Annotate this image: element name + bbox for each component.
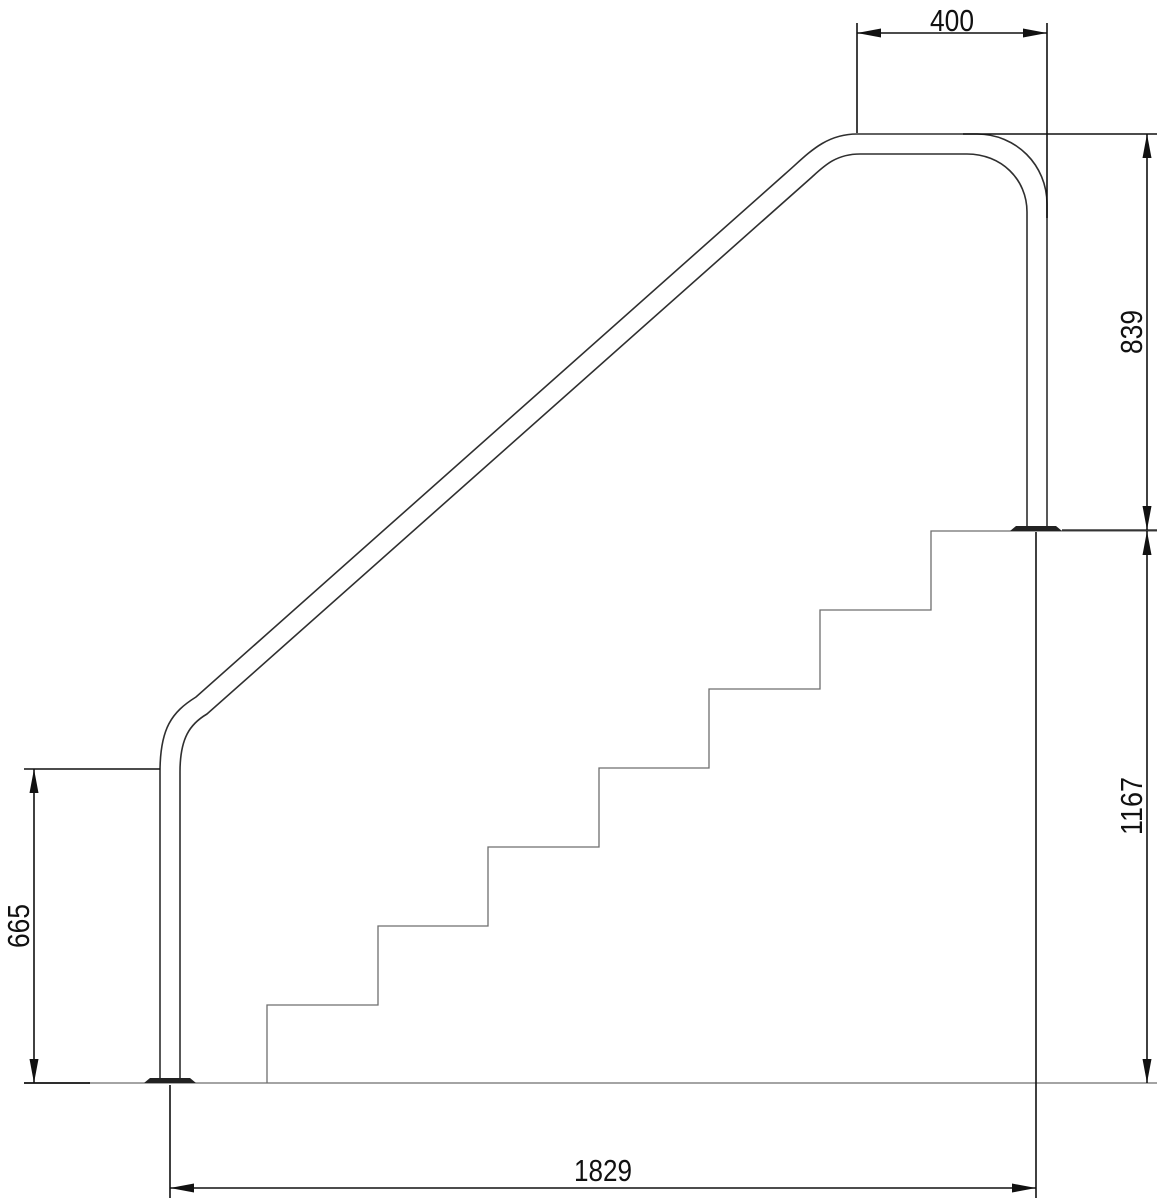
drawing-canvas: 400 839 1167 665 — [0, 0, 1157, 1200]
arrowhead — [1143, 531, 1152, 555]
dimension-label-upper-post-height: 839 — [1114, 310, 1149, 354]
arrowhead — [1023, 29, 1047, 38]
steps-outline — [267, 531, 1157, 1083]
dimension-platform-height: 1167 — [1114, 531, 1152, 1083]
arrowhead — [857, 29, 881, 38]
handrail-inner-line — [180, 154, 1027, 1078]
arrowhead — [1143, 134, 1152, 158]
left-post-flange — [144, 1078, 196, 1083]
dimension-upper-post-height: 839 — [963, 134, 1157, 530]
dimension-label-platform-height: 1167 — [1114, 777, 1149, 835]
arrowhead — [170, 1184, 194, 1193]
handrail — [160, 134, 1047, 1078]
arrowhead — [1143, 506, 1152, 530]
dimension-lower-rail-height: 665 — [1, 769, 160, 1083]
technical-drawing: 400 839 1167 665 — [0, 0, 1157, 1200]
dimension-label-top-offset: 400 — [930, 3, 974, 38]
right-post-flange — [1010, 526, 1062, 531]
handrail-outer-line — [160, 134, 1047, 1078]
dimension-label-lower-rail-height: 665 — [1, 904, 36, 948]
arrowhead — [30, 1059, 39, 1083]
staircase-profile — [88, 531, 1157, 1083]
arrowhead — [30, 769, 39, 793]
arrowhead — [1012, 1184, 1036, 1193]
dimension-top-offset: 400 — [857, 3, 1047, 218]
dimension-label-overall-run: 1829 — [574, 1153, 632, 1188]
arrowhead — [1143, 1059, 1152, 1083]
